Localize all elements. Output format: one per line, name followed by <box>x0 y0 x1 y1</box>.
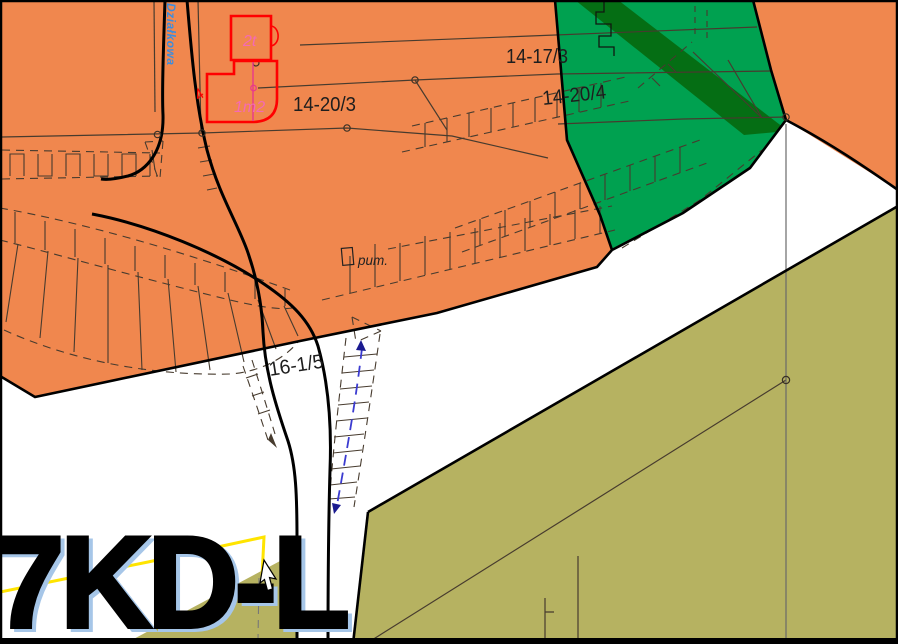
street-name-label: Działkowa <box>164 3 178 66</box>
building-a-label: 2t <box>242 33 257 50</box>
building-b-label: 1m2 <box>234 99 265 116</box>
zoning-map-viewport: 2t 1m2 4 14-17/3 14-20/3 14-20/4 16-1/5 … <box>0 0 898 644</box>
parcel-label-14-17-3: 14-17/3 <box>506 46 568 68</box>
parcel-label-14-20-3: 14-20/3 <box>293 94 356 116</box>
pump-station-label: pum. <box>357 253 388 268</box>
zone-designation-text: 7KD-L <box>0 509 347 644</box>
map-canvas[interactable]: 2t 1m2 4 14-17/3 14-20/3 14-20/4 16-1/5 … <box>0 0 898 644</box>
zone-designation: 7KD-L 7KD-L <box>0 509 351 644</box>
